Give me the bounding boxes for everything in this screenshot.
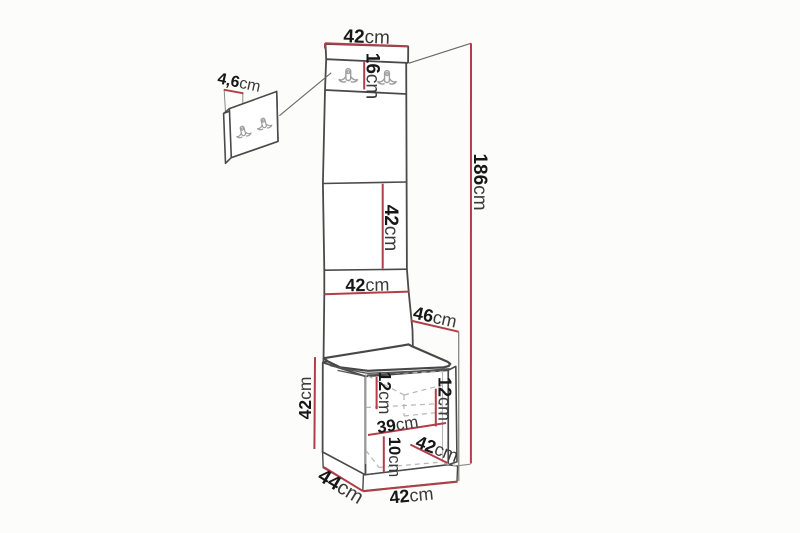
svg-text:42cm: 42cm — [380, 205, 401, 251]
svg-text:10cm: 10cm — [385, 437, 403, 477]
svg-text:12cm: 12cm — [434, 377, 454, 421]
svg-text:186cm: 186cm — [469, 153, 490, 210]
svg-text:16cm: 16cm — [362, 53, 383, 99]
svg-text:42cm: 42cm — [345, 275, 389, 296]
svg-text:12cm: 12cm — [375, 372, 395, 415]
svg-text:42cm: 42cm — [389, 483, 435, 507]
svg-text:42cm: 42cm — [343, 26, 390, 49]
svg-text:42cm: 42cm — [295, 377, 315, 420]
